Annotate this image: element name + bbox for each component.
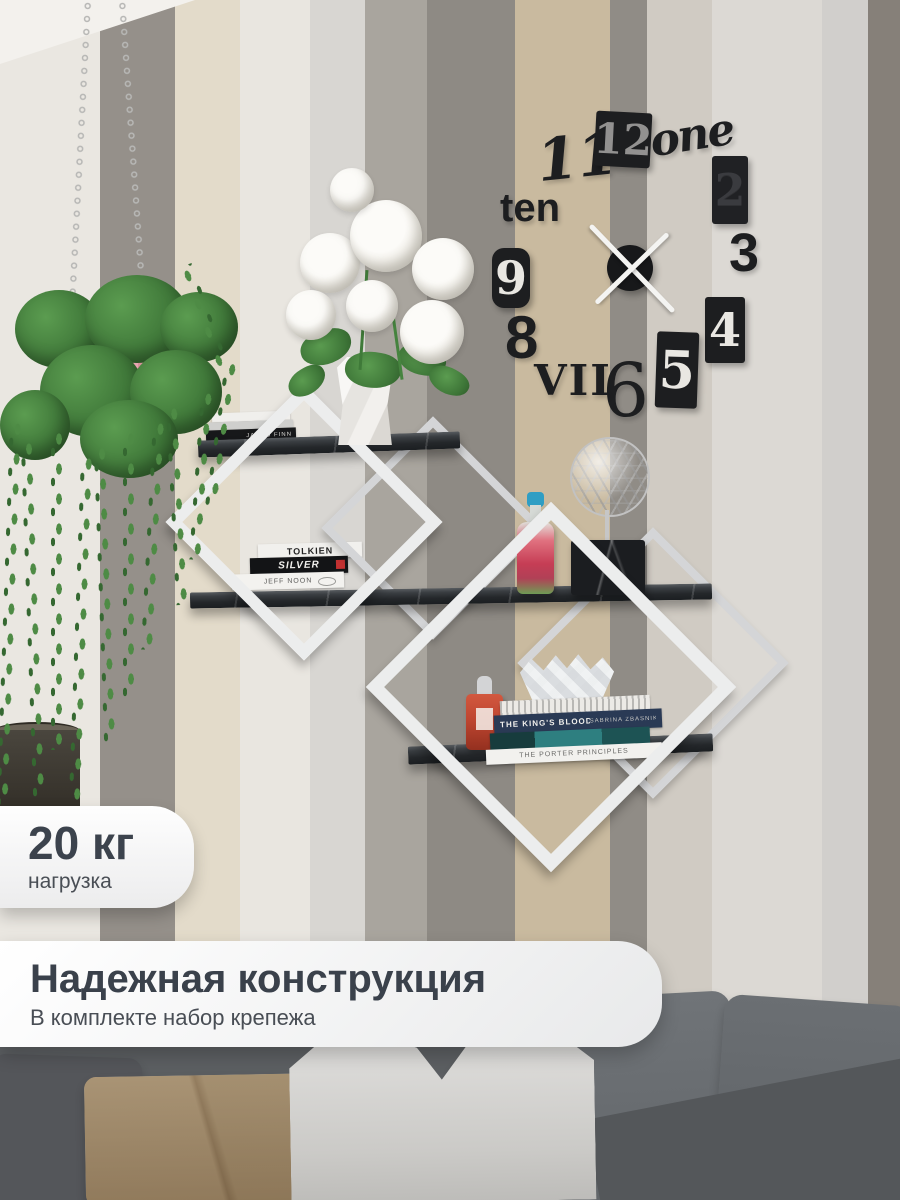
vine [50,430,66,750]
clock-numeral-8: 8 [505,303,538,372]
load-badge-value: 20 кг [28,820,194,866]
feature-banner-title: Надежная конструкция [30,957,662,1001]
load-badge: 20 кг нагрузка [0,806,194,908]
clock-numeral-3: 3 [729,222,759,284]
flower [286,290,336,340]
clock-numeral-4: 4 [705,297,745,363]
flower [346,280,398,332]
sphere-ball [570,437,650,517]
clock-numeral-12: 12 [594,111,653,169]
clock-numeral-2: 2 [712,156,748,224]
flower [400,300,464,364]
flower [412,238,474,300]
product-photo-scene: 11 12 one 2 3 4 5 6 VII 8 9 ten JAMES FI… [0,0,900,1200]
feature-banner: Надежная конструкция В комплекте набор к… [0,941,662,1047]
vine [122,430,138,700]
flower [330,168,374,212]
feature-banner-subtitle: В комплекте набор крепежа [30,1005,662,1031]
clock-numeral-5: 5 [655,331,700,408]
clock-numeral-7: VII [534,356,612,405]
load-badge-label: нагрузка [28,870,194,894]
clock-numeral-ten: ten [500,186,560,231]
sphere-stem [605,510,609,544]
flower [350,200,422,272]
clock-numeral-9: 9 [492,248,530,308]
